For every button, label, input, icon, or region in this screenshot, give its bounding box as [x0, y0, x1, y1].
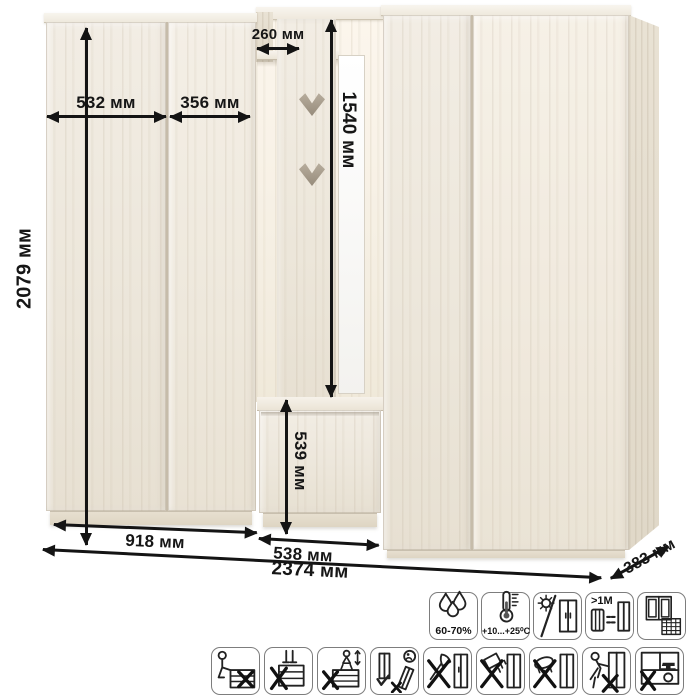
no-dragging-icon	[582, 647, 631, 695]
no-children-jumping-icon	[317, 647, 366, 695]
right-wardrobe-body	[383, 15, 629, 550]
heat-distance-label: >1М	[591, 595, 613, 607]
dim-open-height-arrow	[330, 20, 333, 397]
dim-shelf-depth-arrow	[257, 47, 299, 50]
dim-left-door-label: 532 мм	[46, 93, 166, 113]
no-direct-sunlight-icon	[533, 592, 582, 640]
humidity-label: 60-70%	[430, 625, 477, 637]
shoe-cabinet-handle-groove	[261, 412, 379, 416]
ventilation-icon	[637, 592, 686, 640]
right-wardrobe-plinth	[387, 550, 625, 558]
dim-shelf-depth-label: 260 мм	[247, 26, 309, 43]
shoe-cabinet-top	[257, 397, 383, 411]
dim-bench-height-label: 539 мм	[290, 418, 310, 504]
dim-open-height-label: 1540 мм	[337, 74, 359, 186]
no-sharp-tools-icon	[423, 647, 472, 695]
no-sitting-icon	[211, 647, 260, 695]
right-wardrobe-side-panel	[629, 13, 659, 550]
dim-left-door-arrow	[47, 115, 166, 118]
dim-total-width-label: 2374 мм	[240, 557, 381, 586]
no-overloading-icon	[635, 647, 684, 695]
no-liquid-spill-icon	[476, 647, 525, 695]
right-wardrobe-door-left	[383, 15, 471, 550]
dim-bench-height-arrow	[285, 400, 288, 534]
transport-upright-only-icon	[370, 647, 419, 695]
dim-right-door-label: 356 мм	[170, 93, 250, 113]
shoe-cabinet-door	[259, 410, 381, 513]
dim-right-door-arrow	[170, 115, 250, 118]
humidity-icon: 60-70%	[429, 592, 478, 640]
no-standing-icon	[264, 647, 313, 695]
furniture-dimension-diagram: 2079 мм 532 мм 356 мм 260 мм 1540 мм 539…	[0, 0, 689, 700]
coat-panel	[277, 19, 336, 405]
temperature-icon: +10...+25⁰C	[481, 592, 530, 640]
heat-distance-icon: >1М	[585, 592, 634, 640]
right-wardrobe-door-right	[473, 15, 629, 550]
no-wet-cleaning-icon	[529, 647, 578, 695]
left-wardrobe-plinth	[50, 511, 252, 525]
dim-total-height-label: 2079 мм	[14, 189, 37, 349]
temperature-label: +10...+25⁰C	[482, 626, 529, 637]
